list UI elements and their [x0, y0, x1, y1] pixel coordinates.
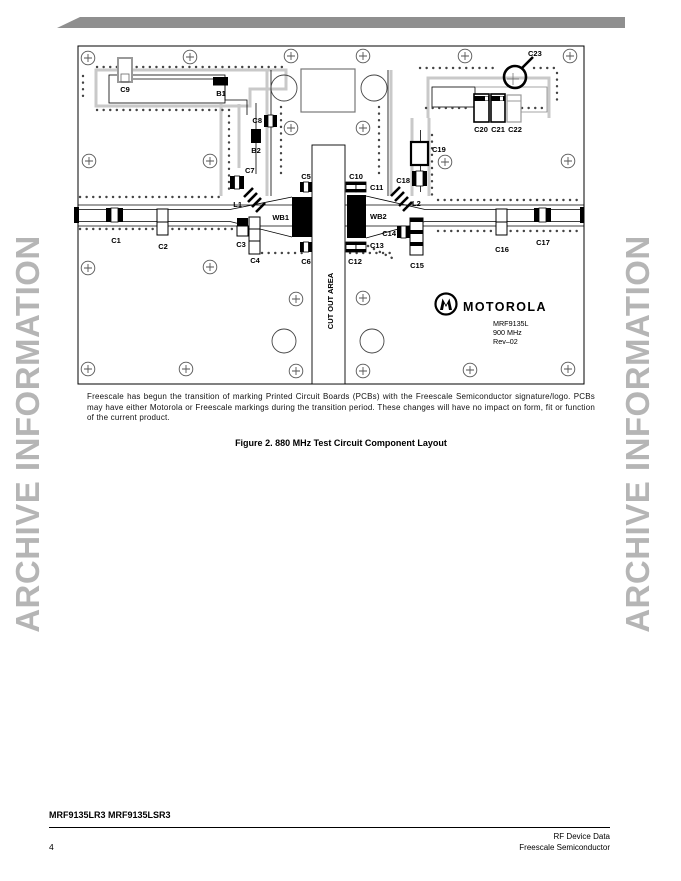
label-wb2: WB2 — [370, 212, 387, 221]
page-number: 4 — [49, 842, 54, 852]
label-b2: B2 — [251, 146, 261, 155]
company-name: Freescale Semiconductor — [300, 843, 610, 854]
label-c4: C4 — [250, 256, 260, 265]
label-c7: C7 — [245, 166, 255, 175]
label-b1: B1 — [216, 89, 226, 98]
label-c2: C2 — [158, 242, 168, 251]
footer-part-numbers: MRF9135LR3 MRF9135LSR3 — [49, 810, 171, 820]
footer-rule — [49, 827, 610, 828]
cut-out-strip — [312, 145, 345, 384]
dut-flange — [301, 69, 355, 112]
label-c17: C17 — [536, 238, 550, 247]
label-c1: C1 — [111, 236, 121, 245]
label-c22: C22 — [508, 125, 522, 134]
label-c16: C16 — [495, 245, 509, 254]
label-c21: C21 — [491, 125, 505, 134]
figure-caption: Figure 2. 880 MHz Test Circuit Component… — [87, 438, 595, 448]
label-c23: C23 — [528, 49, 542, 58]
rev-text: Rev–02 — [493, 337, 518, 346]
footer-doc-info: RF Device Data Freescale Semiconductor — [300, 832, 610, 854]
transition-note: Freescale has begun the transition of ma… — [87, 392, 595, 424]
brand-text: MOTOROLA — [463, 300, 547, 314]
label-c19: C19 — [432, 145, 446, 154]
label-c9: C9 — [120, 85, 130, 94]
cut-out-area-label: CUT OUT AREA — [326, 272, 335, 329]
label-l2: L2 — [412, 199, 421, 208]
top-banner — [57, 17, 625, 28]
label-c3: C3 — [236, 240, 246, 249]
label-wb1: WB1 — [272, 213, 289, 222]
label-l1: L1 — [233, 200, 242, 209]
label-c6: C6 — [301, 257, 311, 266]
label-c8: C8 — [252, 116, 262, 125]
label-c11: C11 — [370, 183, 383, 192]
label-c5: C5 — [301, 172, 311, 181]
label-c12: C12 — [348, 257, 362, 266]
part-text: MRF9135L — [493, 319, 529, 328]
label-c10: C10 — [349, 172, 363, 181]
label-c20: C20 — [474, 125, 488, 134]
label-c13: C13 — [370, 241, 384, 250]
doc-title: RF Device Data — [300, 832, 610, 843]
label-c14: C14 — [382, 229, 397, 238]
freq-text: 900 MHz — [493, 328, 522, 337]
label-c15: C15 — [410, 261, 424, 270]
label-c18: C18 — [396, 176, 410, 185]
